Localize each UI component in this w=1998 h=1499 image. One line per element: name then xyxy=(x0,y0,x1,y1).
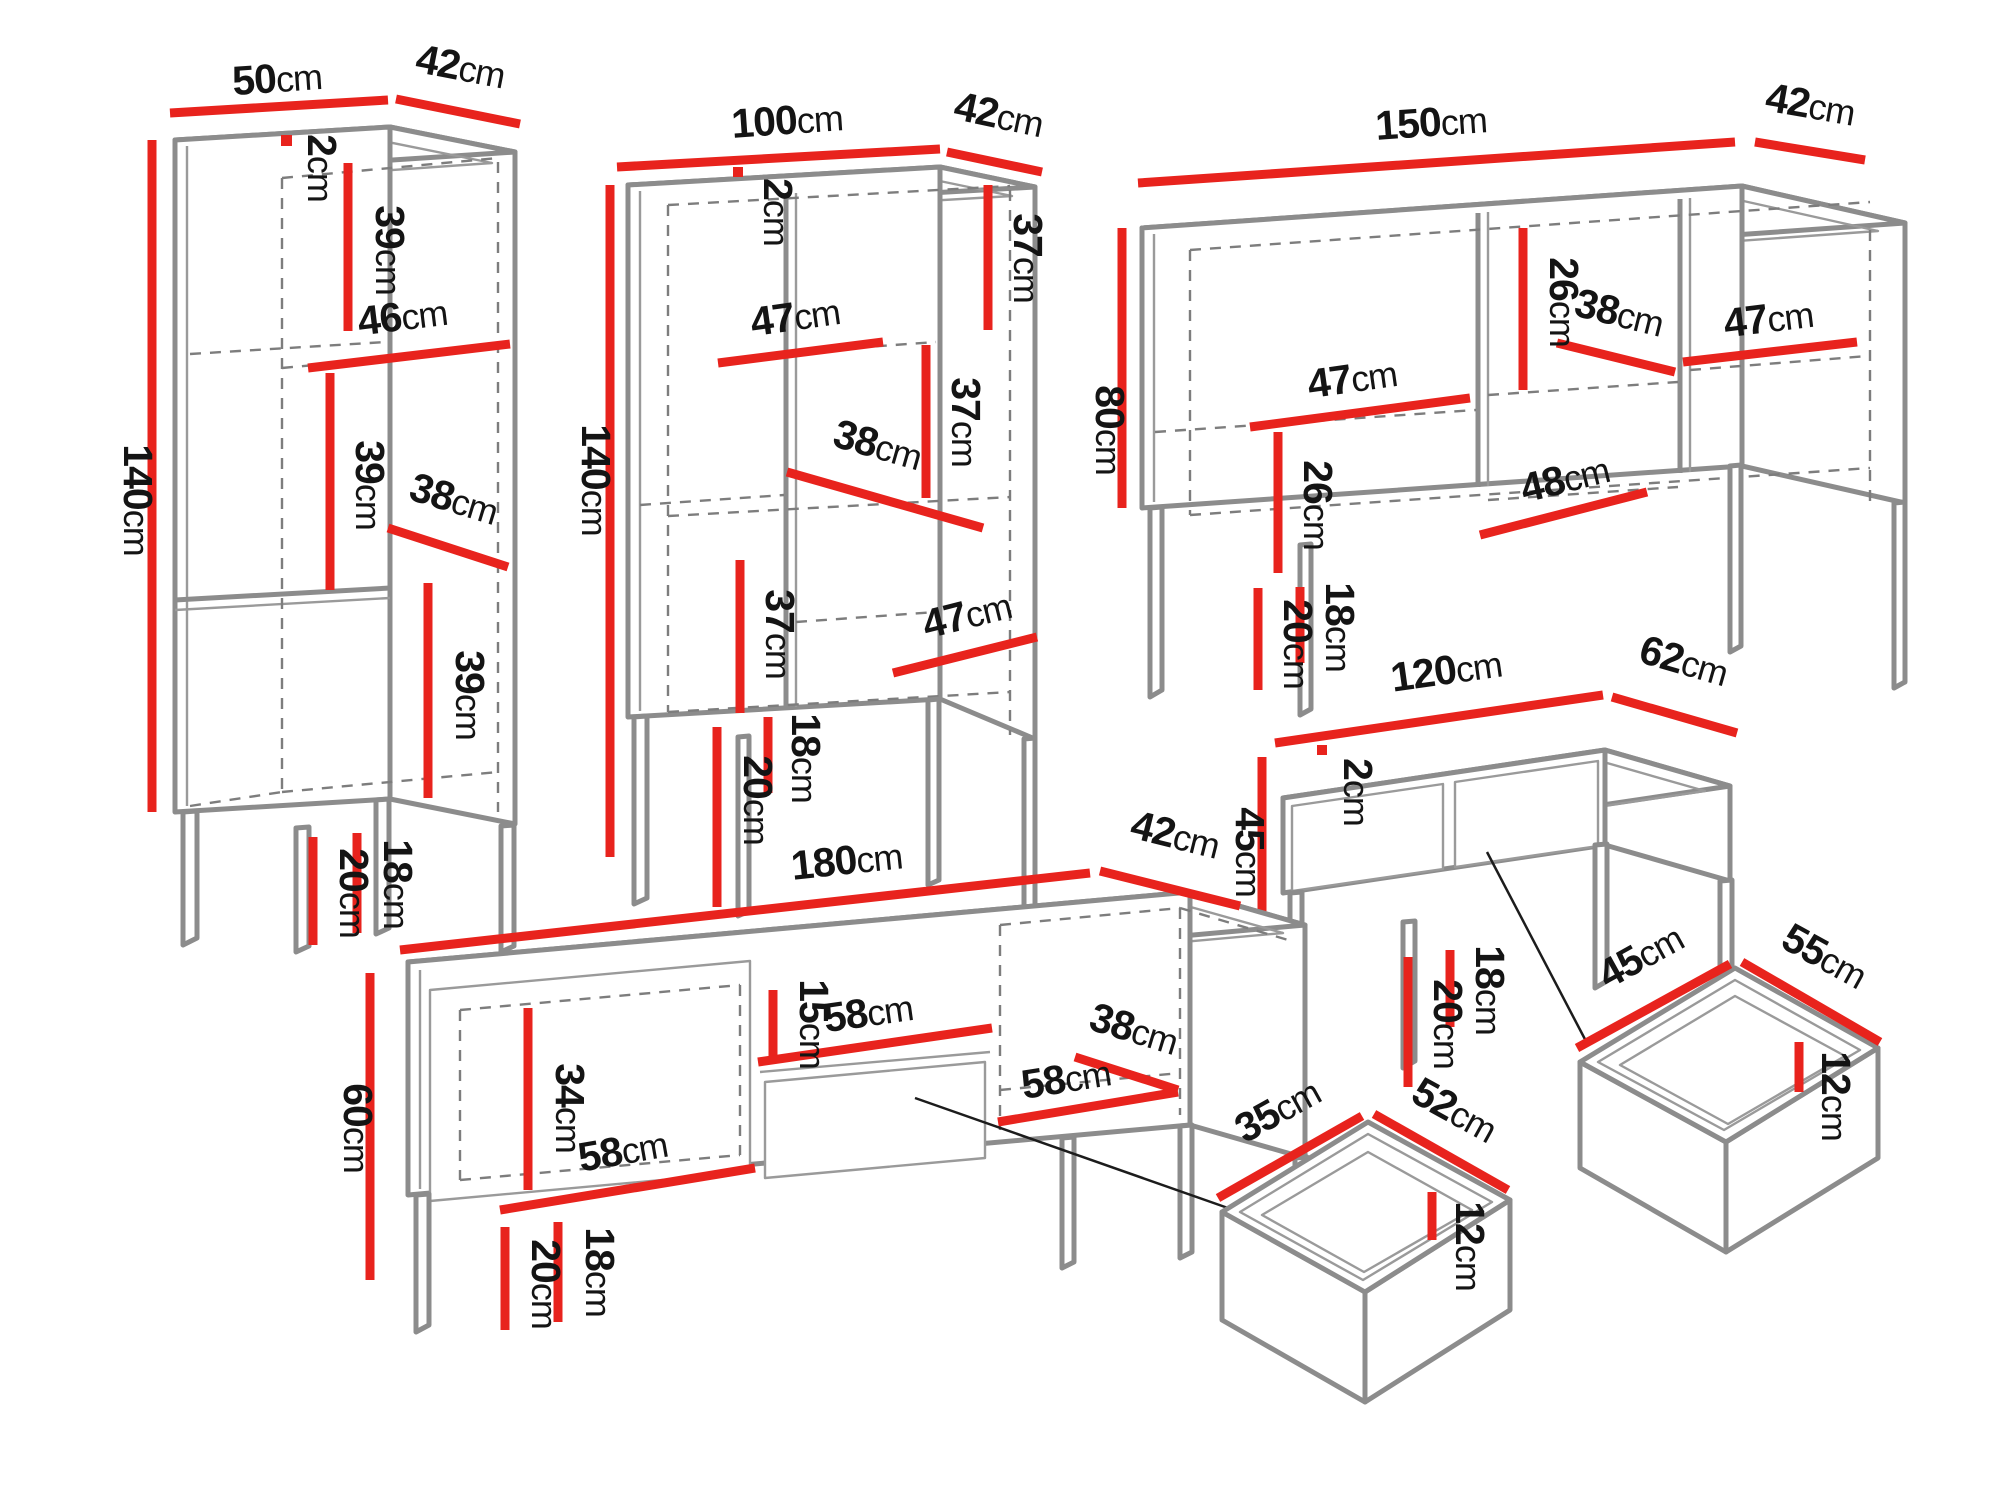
dim-sideboard-width: 150cm xyxy=(1374,95,1488,149)
dim-display-cabinet-right-middle: 37cm xyxy=(943,377,989,467)
dim-drawer-small-height: 12cm xyxy=(1447,1201,1493,1291)
dim-sideboard-lower-inner: 26cm xyxy=(1295,460,1341,550)
sideboard: 150cm 42cm 80cm 26cm 38cm 47cm 47cm 26cm… xyxy=(1087,74,1905,715)
dim-coffee-table-leg20: 20cm xyxy=(1425,979,1471,1069)
dim-line-width xyxy=(1138,142,1735,183)
dim-line-width xyxy=(170,100,388,113)
display-cabinet: 100cm 42cm 2cm 140cm 37cm 47cm 37cm 38cm… xyxy=(573,82,1051,921)
dim-display-cabinet-width: 100cm xyxy=(730,93,844,147)
dim-display-cabinet-left-bottom: 37cm xyxy=(757,589,803,679)
dim-coffee-table-width: 120cm xyxy=(1388,640,1505,701)
dim-tv-stand-leg20: 20cm xyxy=(523,1239,569,1329)
dim-tick-top xyxy=(281,135,292,146)
dim-tall-cabinet-top: 2cm xyxy=(299,134,345,202)
dim-sideboard-leg20: 20cm xyxy=(1275,599,1321,689)
dim-sideboard-depth: 42cm xyxy=(1762,74,1858,135)
dim-coffee-table-depth: 62cm xyxy=(1634,626,1733,695)
dim-tall-cabinet-height: 140cm xyxy=(115,444,161,555)
dim-tall-cabinet-section-top: 39cm xyxy=(367,205,413,295)
furniture-dimension-sheet: 50cm 42cm 2cm 140cm 39cm 46cm 39cm 38cm … xyxy=(0,0,1998,1499)
dim-tall-cabinet-width: 50cm xyxy=(231,52,324,104)
dim-tall-cabinet-leg20: 20cm xyxy=(331,848,377,938)
dim-tv-stand-width: 180cm xyxy=(789,831,905,888)
dim-display-cabinet-top: 2cm xyxy=(755,178,801,246)
dim-sideboard-leg18: 18cm xyxy=(1317,582,1363,672)
dim-line-depth xyxy=(1755,142,1865,160)
dim-tv-stand-depth: 42cm xyxy=(1126,801,1224,867)
dim-tall-cabinet-section-middle: 39cm xyxy=(347,440,393,530)
dim-sideboard-height: 80cm xyxy=(1087,385,1133,475)
dim-coffee-table-height: 45cm xyxy=(1227,807,1273,897)
dim-display-cabinet-leg18: 18cm xyxy=(783,713,829,803)
tall-cabinet: 50cm 42cm 2cm 140cm 39cm 46cm 39cm 38cm … xyxy=(115,35,520,952)
dim-coffee-table-top: 2cm xyxy=(1335,758,1381,826)
dim-display-cabinet-height: 140cm xyxy=(573,424,619,535)
dim-line-depth xyxy=(1612,697,1737,733)
drawer-large: 45cm 55cm 12cm xyxy=(1577,914,1880,1252)
dim-coffee-table-leg18: 18cm xyxy=(1467,945,1513,1035)
dim-tall-cabinet-section-bottom: 39cm xyxy=(447,650,493,740)
dim-tall-cabinet-leg18: 18cm xyxy=(375,839,421,929)
dim-tall-cabinet-depth: 42cm xyxy=(412,35,509,97)
dim-tick-top xyxy=(733,167,743,177)
dim-line-depth xyxy=(396,99,520,124)
dim-tv-stand-leg18: 18cm xyxy=(577,1227,623,1317)
dim-line-width xyxy=(617,149,940,167)
dim-drawer-large-height: 12cm xyxy=(1813,1051,1859,1141)
drawer-small: 35cm 52cm 12cm xyxy=(1218,1068,1510,1402)
dim-line-width xyxy=(1275,695,1603,743)
dim-tv-stand-height: 60cm xyxy=(335,1083,381,1173)
display-cabinet-outline xyxy=(628,167,1035,921)
dim-display-cabinet-leg20: 20cm xyxy=(735,755,781,845)
dim-tick-top xyxy=(1317,745,1327,755)
tv-stand: 180cm 42cm 60cm 34cm 58cm 15cm 58cm 38cm… xyxy=(335,801,1307,1332)
furniture-dimension-diagram: 50cm 42cm 2cm 140cm 39cm 46cm 39cm 38cm … xyxy=(0,0,1998,1499)
dim-display-cabinet-right-top: 37cm xyxy=(1005,213,1051,303)
dim-display-cabinet-depth: 42cm xyxy=(950,82,1047,146)
